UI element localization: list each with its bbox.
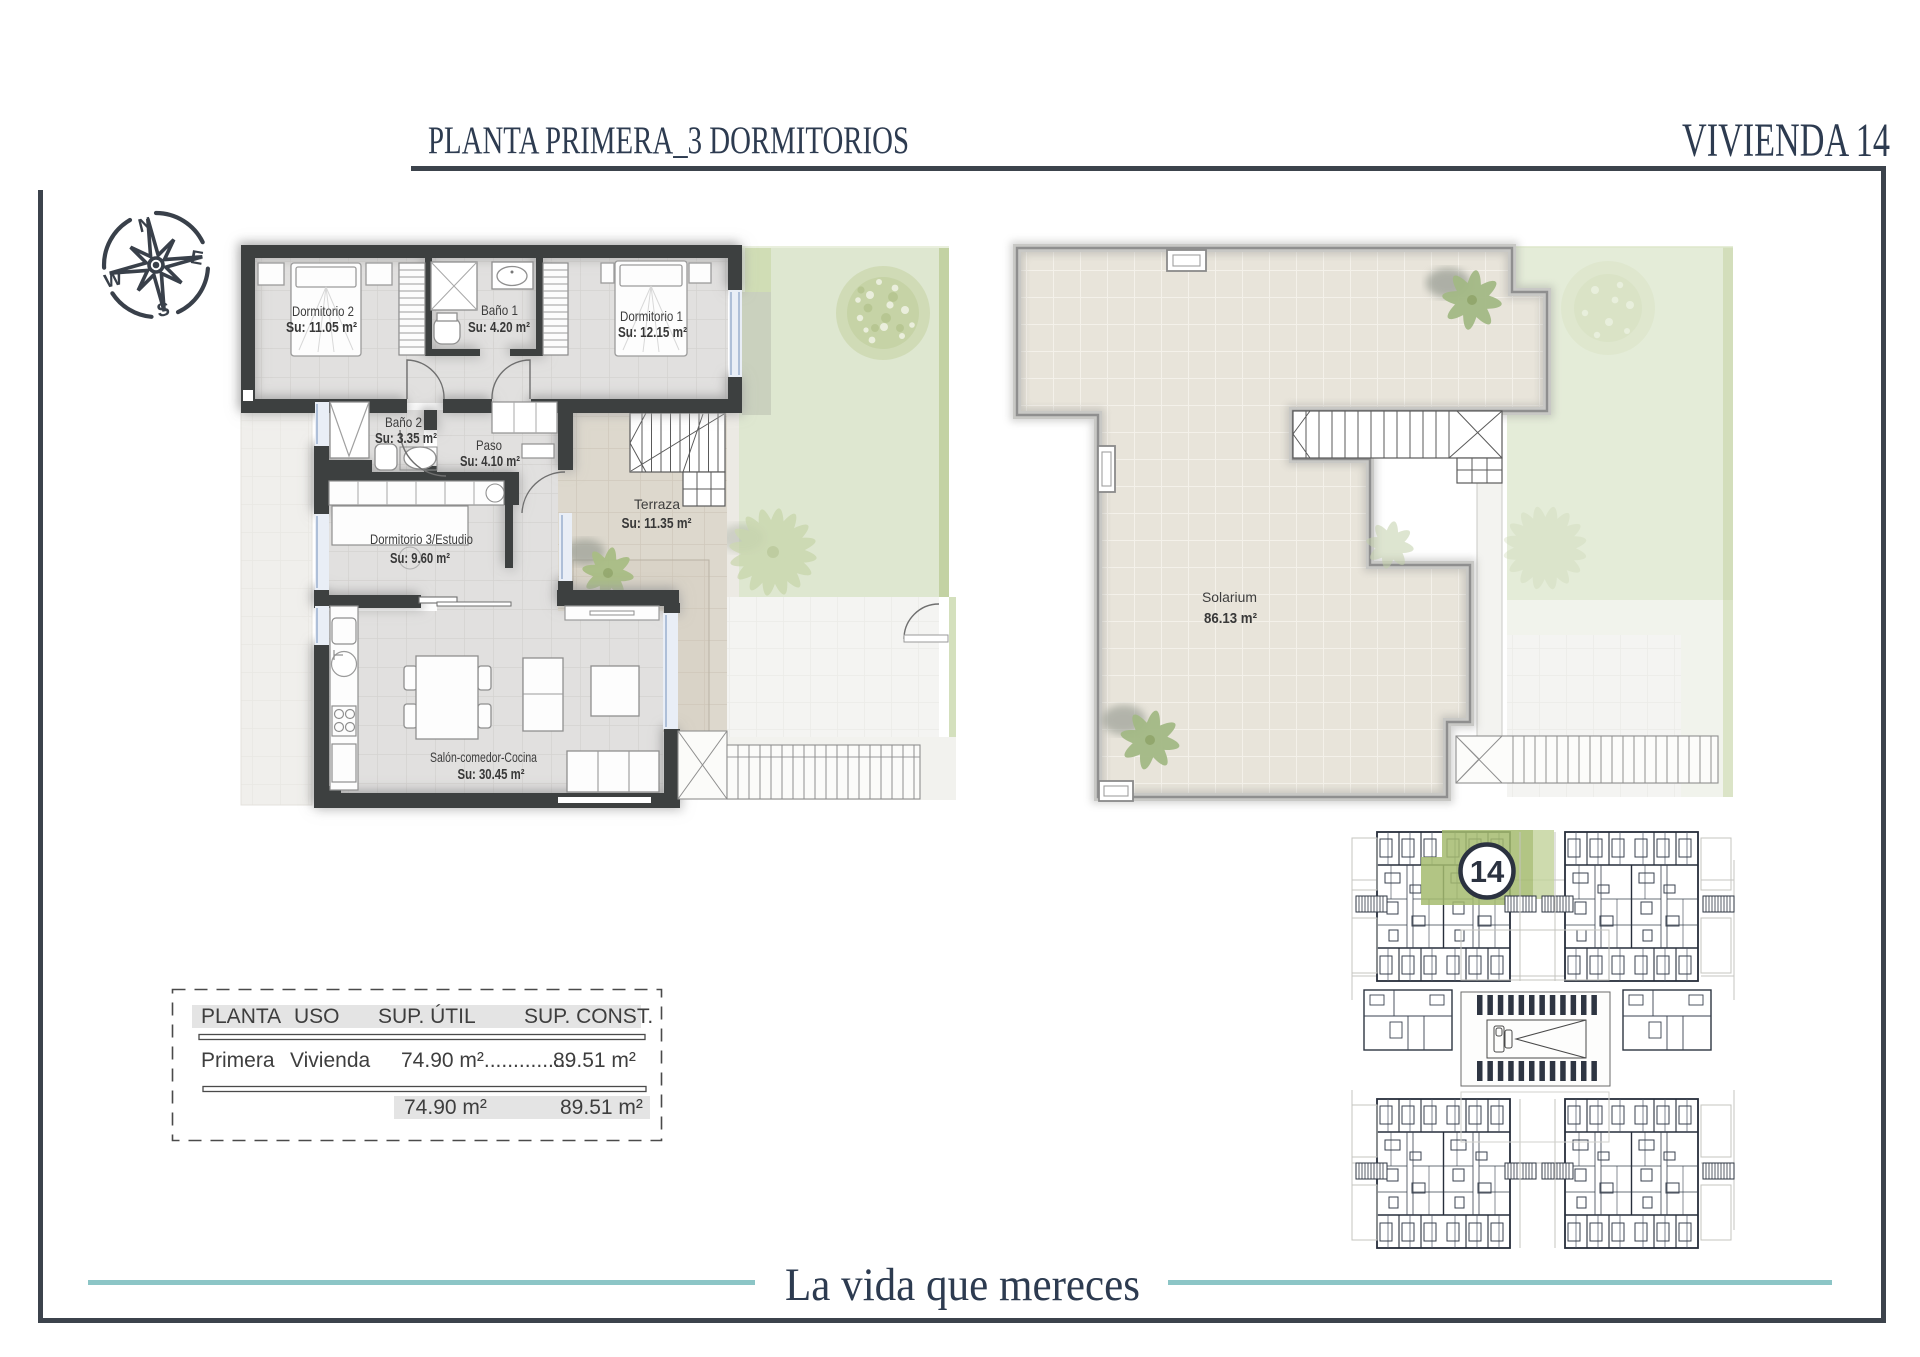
svg-text:Baño 2: Baño 2 [385, 414, 422, 430]
svg-text:Su: 3.35 m²: Su: 3.35 m² [375, 431, 437, 447]
svg-text:Su: 9.60 m²: Su: 9.60 m² [390, 551, 450, 567]
svg-text:Dormitorio 3/Estudio: Dormitorio 3/Estudio [370, 531, 473, 547]
svg-text:Su: 11.35 m²: Su: 11.35 m² [622, 516, 692, 532]
svg-text:Su: 4.10 m²: Su: 4.10 m² [460, 454, 520, 470]
svg-text:74.90 m²...............: 74.90 m²............... [401, 1049, 571, 1072]
svg-text:PLANTA: PLANTA [201, 1005, 281, 1028]
svg-text:74.90 m²: 74.90 m² [404, 1096, 487, 1119]
svg-text:PLANTA PRIMERA_3 DORMITORIOS: PLANTA PRIMERA_3 DORMITORIOS [428, 119, 909, 162]
svg-text:La vida que mereces: La vida que mereces [785, 1259, 1140, 1311]
svg-text:Baño 1: Baño 1 [481, 302, 518, 318]
svg-text:Su: 12.15 m²: Su: 12.15 m² [618, 325, 687, 341]
svg-text:USO: USO [294, 1005, 340, 1028]
svg-text:Su: 4.20 m²: Su: 4.20 m² [468, 320, 530, 336]
svg-text:86.13 m²: 86.13 m² [1204, 611, 1257, 627]
svg-text:89.51 m²: 89.51 m² [553, 1049, 636, 1072]
svg-text:14: 14 [1470, 854, 1505, 889]
svg-text:Dormitorio 1: Dormitorio 1 [620, 308, 683, 324]
svg-text:Solarium: Solarium [1202, 589, 1257, 605]
svg-text:Su: 30.45 m²: Su: 30.45 m² [458, 767, 525, 783]
svg-text:Salón-comedor-Cocina: Salón-comedor-Cocina [430, 749, 537, 765]
svg-text:Su: 11.05 m²: Su: 11.05 m² [286, 320, 357, 336]
svg-text:SUP. CONST.: SUP. CONST. [524, 1005, 653, 1028]
svg-text:89.51 m²: 89.51 m² [560, 1096, 643, 1119]
svg-text:Paso: Paso [476, 437, 502, 453]
svg-text:SUP. ÚTIL: SUP. ÚTIL [378, 1005, 476, 1028]
svg-text:Vivienda: Vivienda [290, 1049, 370, 1072]
svg-text:Primera: Primera [201, 1049, 275, 1072]
svg-text:Dormitorio 2: Dormitorio 2 [292, 303, 354, 319]
svg-text:VIVIENDA 14: VIVIENDA 14 [1682, 114, 1890, 167]
svg-text:Terraza: Terraza [634, 496, 680, 512]
